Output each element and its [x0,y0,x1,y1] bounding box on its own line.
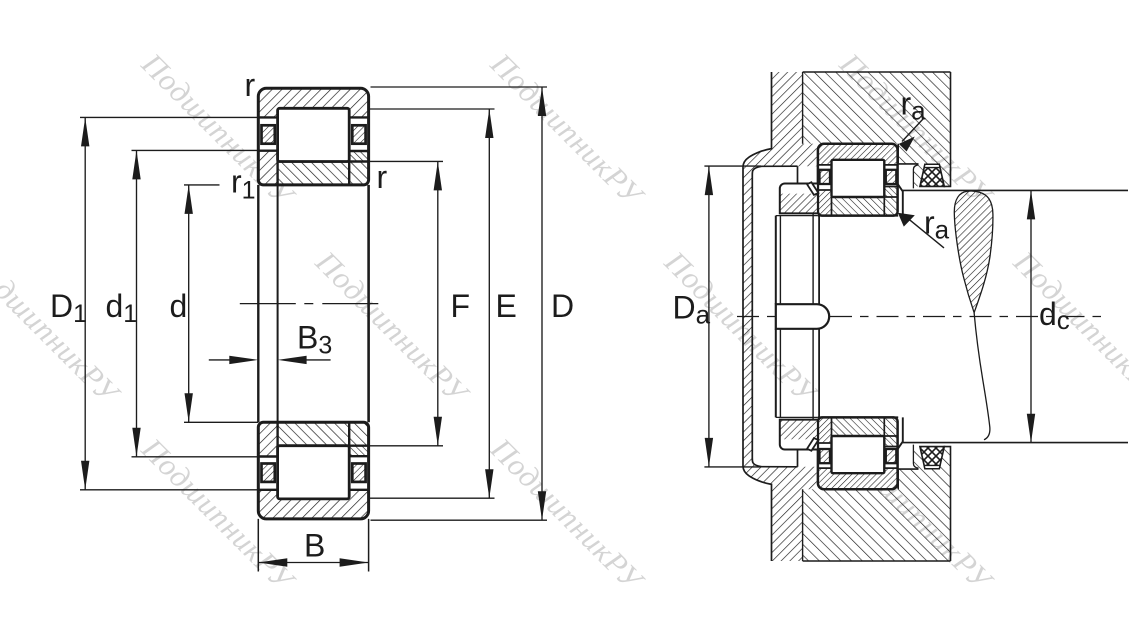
svg-text:E: E [496,288,517,324]
svg-text:D: D [551,288,574,324]
svg-text:r: r [245,67,256,103]
svg-text:r: r [377,159,388,195]
svg-text:B: B [304,528,325,564]
svg-text:F: F [451,288,471,324]
svg-text:d: d [170,288,188,324]
